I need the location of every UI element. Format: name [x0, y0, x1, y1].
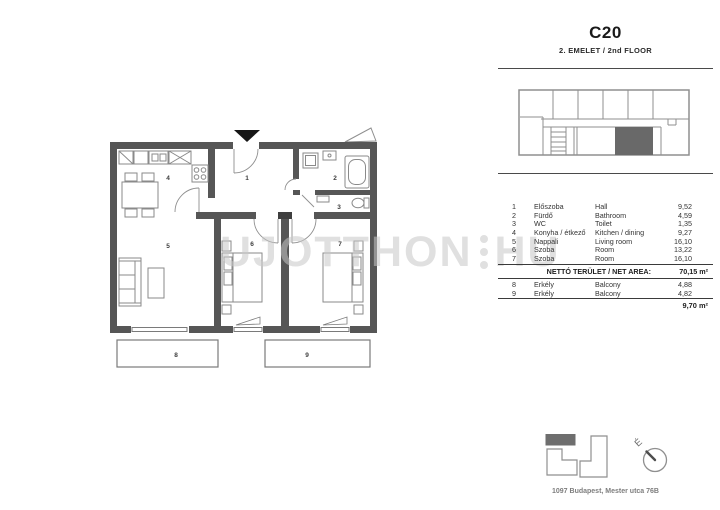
- row-name-en: Balcony: [595, 280, 653, 289]
- row-area: 4,82: [653, 289, 713, 298]
- apartment-floor-plan: 1 2 3 4 5 6 7 8 9: [95, 120, 395, 380]
- row-num: 3: [512, 219, 534, 228]
- row-name-en: Room: [595, 245, 653, 254]
- row-name-hu: Erkély: [534, 280, 595, 289]
- floor-plan-sheet: 1 2 3 4 5 6 7 8 9 UJOTTHON HU C20 2. EME…: [0, 0, 720, 510]
- room-label-3: 3: [337, 204, 341, 211]
- bed-room7: [323, 241, 363, 314]
- table-rule: [498, 278, 713, 279]
- room-label-2: 2: [333, 175, 337, 182]
- row-name-hu: Konyha / étkező: [534, 228, 595, 237]
- divider-line: [498, 173, 713, 174]
- row-name-en: Bathroom: [595, 211, 653, 220]
- row-area: 13,22: [653, 245, 713, 254]
- row-name-hu: WC: [534, 219, 595, 228]
- row-num: 2: [512, 211, 534, 220]
- room-label-4: 4: [166, 175, 170, 182]
- row-num: 1: [512, 202, 534, 211]
- legend-row: 2 Fürdő Bathroom 4,59: [498, 211, 713, 220]
- highlighted-unit: [615, 127, 653, 155]
- room-label-1: 1: [245, 175, 249, 182]
- row-name-en: Living room: [595, 237, 653, 246]
- divider-line: [498, 68, 713, 69]
- floor-subtitle: 2. EMELET / 2nd FLOOR: [498, 46, 713, 55]
- legend-row: 3 WC Toilet 1,35: [498, 219, 713, 228]
- row-name-hu: Erkély: [534, 289, 595, 298]
- balcony-row: 8 Erkély Balcony 4,88: [498, 280, 713, 289]
- row-area: 9,52: [653, 202, 713, 211]
- legend-row: 6 Szoba Room 13,22: [498, 245, 713, 254]
- room-label-8: 8: [174, 352, 178, 359]
- exterior-shaft-outline: [345, 128, 376, 142]
- row-num: 7: [512, 254, 534, 263]
- bed-room6: [222, 241, 262, 314]
- sofa: [119, 258, 141, 306]
- row-name-en: Toilet: [595, 219, 653, 228]
- unit-title: C20: [498, 23, 713, 43]
- row-name-en: Hall: [595, 202, 653, 211]
- balcony-total: 9,70 m²: [498, 300, 713, 312]
- row-area: 1,35: [653, 219, 713, 228]
- net-area-value: 70,15 m²: [651, 267, 713, 276]
- row-area: 9,27: [653, 228, 713, 237]
- table-rule: [498, 298, 713, 299]
- compass-icon: É: [629, 433, 675, 479]
- row-num: 5: [512, 237, 534, 246]
- watermark-colon-icon: [480, 235, 488, 269]
- net-area-label: NETTÓ TERÜLET / NET AREA:: [498, 267, 651, 276]
- building-outline-right: [580, 436, 607, 477]
- room-label-9: 9: [305, 352, 309, 359]
- building-key-plan: [518, 89, 690, 157]
- legend-row: 5 Nappali Living room 16,10: [498, 237, 713, 246]
- table-rule: [498, 264, 713, 265]
- row-name-hu: Szoba: [534, 245, 595, 254]
- site-plan: [545, 432, 640, 480]
- row-area: 16,10: [653, 237, 713, 246]
- row-num: 9: [512, 289, 534, 298]
- row-num: 4: [512, 228, 534, 237]
- compass-north-label: É: [633, 437, 645, 449]
- row-name-en: Balcony: [595, 289, 653, 298]
- entrance-arrow-icon: [234, 130, 260, 142]
- row-name-hu: Nappali: [534, 237, 595, 246]
- row-area: 4,88: [653, 280, 713, 289]
- row-name-en: Kitchen / dining: [595, 228, 653, 237]
- room-label-7: 7: [338, 241, 342, 248]
- row-num: 8: [512, 280, 534, 289]
- building-outline-left: [547, 449, 577, 475]
- site-highlighted-building: [546, 434, 576, 446]
- address-text: 1097 Budapest, Mester utca 76B: [498, 488, 713, 495]
- room-label-6: 6: [250, 241, 254, 248]
- row-area: 16,10: [653, 254, 713, 263]
- bathroom-fixtures: [303, 151, 369, 188]
- legend-row: 4 Konyha / étkező Kitchen / dining 9,27: [498, 228, 713, 237]
- room-label-5: 5: [166, 243, 170, 250]
- dining-table: [122, 173, 158, 217]
- coffee-table: [148, 268, 164, 298]
- row-name-hu: Fürdő: [534, 211, 595, 220]
- net-area-row: NETTÓ TERÜLET / NET AREA: 70,15 m²: [498, 266, 713, 277]
- legend-row: 7 Szoba Room 16,10: [498, 254, 713, 263]
- room-legend-table: 1 Előszoba Hall 9,52 2 Fürdő Bathroom 4,…: [498, 202, 713, 312]
- balcony-row: 9 Erkély Balcony 4,82: [498, 289, 713, 298]
- row-name-en: Room: [595, 254, 653, 263]
- toilet-icon: [317, 196, 369, 208]
- row-name-hu: Előszoba: [534, 202, 595, 211]
- legend-row: 1 Előszoba Hall 9,52: [498, 202, 713, 211]
- row-num: 6: [512, 245, 534, 254]
- row-area: 4,59: [653, 211, 713, 220]
- row-name-hu: Szoba: [534, 254, 595, 263]
- balconies: [117, 340, 370, 367]
